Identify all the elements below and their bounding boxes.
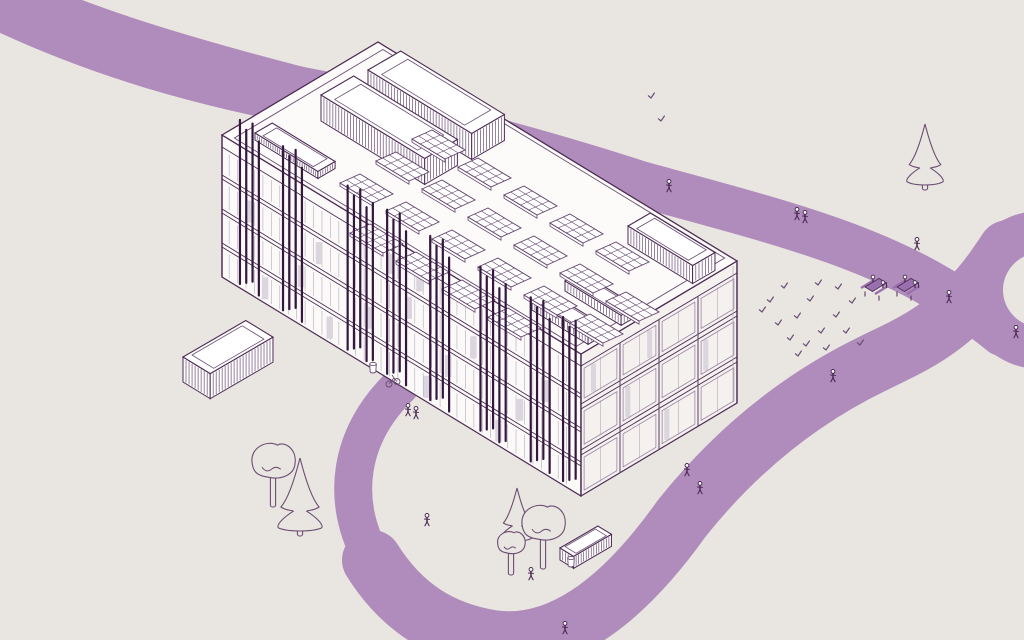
person-head: [414, 407, 418, 411]
trash-bin-icon: [370, 362, 377, 373]
tree-canopy: [522, 505, 565, 540]
window-glass: [327, 317, 334, 339]
person-head: [667, 180, 671, 184]
person-head: [1014, 326, 1018, 330]
window-glass: [262, 277, 269, 299]
tree-trunk: [508, 552, 513, 575]
person-head: [529, 568, 533, 572]
person-head: [913, 281, 917, 285]
trash-bin-icon: [568, 556, 575, 567]
person-head: [685, 464, 689, 468]
site-plan-illustration: [0, 0, 1024, 640]
window-glass: [316, 242, 323, 264]
person-head: [871, 275, 875, 279]
window-glass: [470, 336, 477, 358]
window-glass: [647, 330, 652, 358]
person-head: [698, 482, 702, 486]
isometric-site-drawing: [0, 0, 1024, 640]
tree-trunk: [270, 476, 275, 507]
person-head: [903, 275, 907, 279]
person-head: [406, 404, 410, 408]
person-head: [947, 291, 951, 295]
person-head: [803, 211, 807, 215]
tree-trunk: [540, 538, 545, 569]
person-head: [425, 514, 429, 518]
window-glass: [703, 340, 708, 371]
window-glass: [591, 364, 596, 392]
window-glass: [625, 386, 630, 417]
window-glass: [423, 376, 430, 398]
person-head: [563, 622, 567, 626]
person-head: [915, 238, 919, 242]
person-head: [881, 281, 885, 285]
window-glass: [664, 409, 669, 440]
tree-canopy: [252, 443, 295, 478]
window-glass: [517, 399, 524, 421]
tree-canopy: [498, 532, 526, 554]
person-head: [831, 370, 835, 374]
person-head: [795, 208, 799, 212]
